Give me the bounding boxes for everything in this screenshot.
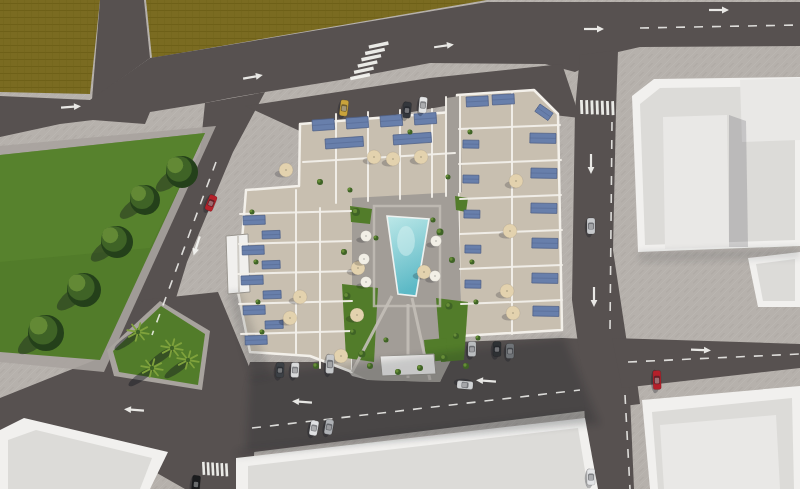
shrub	[352, 208, 360, 216]
solar-panel	[492, 94, 514, 105]
shrub	[260, 330, 265, 335]
car-roof	[326, 425, 331, 430]
solar-panel	[241, 275, 263, 285]
car-roof	[293, 368, 298, 373]
parasol-pole	[289, 317, 291, 319]
shrub-highlight	[408, 130, 411, 133]
parasol-pole	[363, 258, 365, 260]
crosswalk-bar	[611, 101, 614, 115]
shrub-highlight	[468, 130, 471, 133]
solar-panel	[533, 306, 559, 316]
shrub	[463, 363, 469, 369]
car-roof	[194, 482, 199, 487]
shrub	[468, 130, 473, 135]
palm-crown	[186, 358, 190, 362]
shrub-highlight	[417, 365, 420, 368]
solar-panel	[346, 116, 369, 129]
crosswalk-bar	[580, 100, 583, 114]
shrub-highlight	[374, 236, 377, 239]
car-roof	[470, 347, 474, 352]
shrub-highlight	[260, 330, 263, 333]
solar-panel	[465, 245, 481, 253]
solar-panel	[463, 175, 479, 183]
shrub-highlight	[431, 218, 434, 221]
shrub-highlight	[341, 249, 344, 252]
parasol-pole	[420, 156, 422, 158]
solar-panel	[463, 140, 479, 148]
shrub	[341, 249, 347, 255]
solar-panel	[262, 230, 280, 239]
car-roof	[508, 349, 512, 354]
shrub-highlight	[350, 329, 353, 332]
crosswalk-bar	[606, 101, 609, 115]
parasol-pole	[515, 180, 517, 182]
parasol-pole	[299, 296, 301, 298]
pool-highlight	[397, 226, 415, 256]
parasol-pole	[365, 235, 367, 237]
shrub-highlight	[367, 363, 370, 366]
shrub	[254, 260, 259, 265]
solar-panel	[243, 215, 265, 225]
parasol-pole	[509, 230, 511, 232]
shrub-highlight	[463, 363, 466, 366]
shrub-highlight	[250, 210, 253, 213]
shrub	[408, 130, 413, 135]
parasol-pole	[506, 290, 508, 292]
shrub	[474, 300, 479, 305]
building-top-right-shade	[729, 115, 748, 247]
solar-panel	[532, 273, 558, 283]
palm-crown	[150, 366, 154, 370]
parasol-pole	[373, 156, 375, 158]
car-roof	[421, 103, 426, 108]
car-roof	[495, 347, 499, 352]
solar-panel	[245, 335, 267, 345]
parasol-pole	[357, 267, 359, 269]
tree-canopy-light	[102, 227, 118, 243]
car-roof	[655, 378, 660, 384]
solar-panel	[465, 280, 481, 288]
shrub	[437, 229, 444, 236]
building-top-right-block-a	[663, 115, 729, 249]
solar-panel	[530, 133, 556, 143]
building-bottom-right-block	[660, 415, 780, 489]
shrub-highlight	[395, 369, 398, 372]
shrub-highlight	[470, 260, 473, 263]
shrub-highlight	[441, 355, 445, 359]
parasol-pole	[512, 312, 514, 314]
parasol-pole	[285, 169, 287, 171]
building-top-right-block-b	[740, 78, 800, 142]
shrub	[359, 351, 366, 358]
building-top-right	[632, 77, 800, 252]
field-left	[0, 0, 100, 94]
car-roof	[278, 368, 283, 373]
solar-panel	[464, 210, 480, 218]
lawn-north	[350, 206, 372, 224]
render-canvas	[0, 0, 800, 489]
shrub-highlight	[313, 363, 316, 366]
car-roof	[589, 475, 593, 480]
shrub	[453, 333, 459, 339]
tree-canopy-light	[131, 186, 146, 201]
shrub	[374, 236, 379, 241]
tree-canopy-light	[167, 157, 183, 173]
car-roof	[462, 383, 467, 388]
lane-arrow-shaft	[691, 349, 704, 352]
solar-panel	[263, 290, 281, 299]
car-roof	[589, 224, 593, 229]
lane-arrow-shaft	[584, 28, 597, 30]
shrub-highlight	[437, 229, 441, 233]
shrub	[317, 179, 323, 185]
car-roof	[341, 106, 346, 111]
parasol-pole	[423, 271, 425, 273]
shrub-highlight	[476, 336, 479, 339]
shrub-highlight	[384, 338, 387, 341]
shrub-highlight	[353, 209, 357, 213]
shrub-highlight	[317, 179, 320, 182]
crosswalk-bar	[596, 101, 599, 115]
shrub-highlight	[359, 351, 363, 355]
shrub	[250, 210, 255, 215]
shrub	[417, 365, 423, 371]
shrub-highlight	[446, 175, 449, 178]
solar-panel	[531, 168, 557, 178]
parasol-pole	[434, 275, 436, 277]
crosswalk-bar	[601, 101, 604, 115]
shrub-highlight	[344, 293, 348, 297]
shrub	[470, 260, 475, 265]
shrub-highlight	[453, 333, 456, 336]
shrub-highlight	[474, 300, 477, 303]
shrub	[384, 338, 389, 343]
shrub-highlight	[254, 260, 257, 263]
car-roof	[328, 362, 333, 368]
solar-panel	[532, 238, 558, 248]
car-roof	[311, 426, 316, 431]
tree-canopy-light	[68, 274, 85, 291]
shrub-highlight	[256, 300, 259, 303]
parasol-pole	[340, 355, 342, 357]
shrub	[446, 303, 453, 310]
parasol-pole	[365, 281, 367, 283]
car-roof	[405, 108, 410, 113]
shrub	[449, 257, 455, 263]
solar-panel	[531, 203, 557, 213]
shrub-highlight	[348, 188, 351, 191]
building-right-middle-roof	[756, 259, 795, 301]
shrub	[256, 300, 261, 305]
tree-canopy-light	[30, 317, 48, 335]
solar-panel	[242, 245, 264, 255]
shrub	[431, 218, 436, 223]
crosswalk-bar	[590, 100, 593, 114]
solar-panel	[312, 118, 335, 131]
lane-arrow-shaft	[590, 154, 592, 167]
parasol-pole	[435, 240, 437, 242]
parasol-pole	[392, 158, 394, 160]
crosswalk-bar	[585, 100, 588, 114]
shrub	[441, 355, 448, 362]
aerial-render	[0, 0, 800, 489]
shrub	[350, 329, 356, 335]
lane-arrow-shaft	[709, 9, 722, 11]
shrub-highlight	[449, 257, 452, 260]
solar-panel	[262, 260, 280, 269]
shrub	[476, 336, 481, 341]
building-bottom-right	[642, 386, 800, 489]
solar-panel	[414, 112, 437, 125]
shrub-highlight	[446, 303, 450, 307]
palm-crown	[136, 330, 140, 334]
solar-panel	[466, 96, 488, 107]
lane-arrow-shaft	[593, 287, 595, 300]
parasol-pole	[356, 314, 358, 316]
solar-panel	[380, 114, 403, 127]
shrub	[395, 369, 401, 375]
solar-panel	[243, 305, 265, 315]
shrub	[367, 363, 373, 369]
shrub	[348, 188, 353, 193]
shrub	[313, 363, 319, 369]
shrub	[344, 293, 351, 300]
palm-crown	[170, 346, 174, 350]
shrub	[446, 175, 451, 180]
